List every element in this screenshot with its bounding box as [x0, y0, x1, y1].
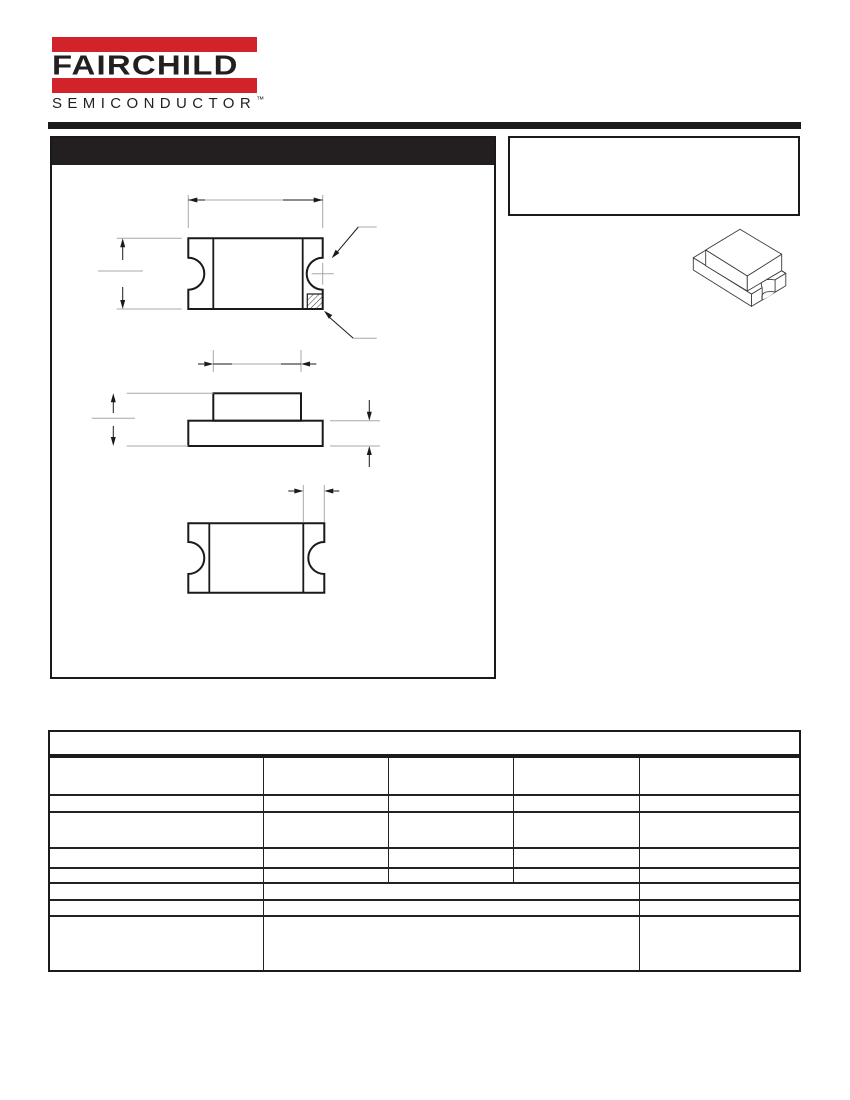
table-cell [639, 868, 799, 883]
table-cell [50, 883, 263, 900]
table-row [50, 883, 799, 900]
arrowhead-up-icon [120, 238, 125, 247]
table-cell [263, 795, 388, 812]
table-cell-merged [263, 916, 639, 970]
top-view-terminal-lines [213, 238, 302, 309]
arrowhead-up-icon [367, 446, 372, 455]
header-cell [263, 758, 388, 795]
package-top-view [98, 195, 377, 372]
arrowhead-left-icon [301, 362, 310, 367]
header-cell [388, 758, 513, 795]
package-isometric-view [690, 228, 802, 313]
table-cell [263, 848, 388, 868]
table-cell [513, 812, 639, 848]
datasheet-page: FAIRCHILD SEMICONDUCTOR™ [0, 0, 850, 1100]
table-cell [639, 883, 799, 900]
spec-table-title [50, 732, 799, 758]
table-cell [639, 848, 799, 868]
header-cell [513, 758, 639, 795]
table-cell [50, 848, 263, 868]
dimension-top-width [188, 195, 322, 228]
table-cell [639, 795, 799, 812]
table-cell [263, 812, 388, 848]
bottom-view-terminal-lines [209, 523, 303, 592]
table-cell-merged [263, 900, 639, 916]
panel-title-bar [52, 138, 494, 165]
arrowhead-right-icon [204, 362, 213, 367]
table-row [50, 812, 799, 848]
notch-center-crosshair [312, 263, 334, 285]
leader-arrowhead-icon [324, 311, 332, 319]
table-cell [50, 916, 263, 970]
arrowhead-left-icon [324, 489, 333, 494]
arrowhead-down-icon [367, 412, 372, 421]
logo-brand-text: FAIRCHILD [52, 51, 302, 78]
arrowhead-down-icon [111, 437, 116, 446]
header-divider-rule [48, 122, 801, 129]
leader-notch [332, 227, 377, 258]
logo-subbrand-text: SEMICONDUCTOR™ [52, 95, 264, 112]
dimension-base-thickness [330, 400, 380, 467]
table-cell [50, 812, 263, 848]
header-cell [50, 758, 263, 795]
arrowhead-right-icon [314, 198, 323, 203]
table-cell [388, 848, 513, 868]
table-cell [513, 868, 639, 883]
spec-table [48, 730, 801, 972]
dimension-lens-width [198, 350, 316, 372]
package-drawing [52, 165, 494, 677]
table-cell [263, 868, 388, 883]
package-side-view [92, 393, 380, 467]
table-cell [50, 868, 263, 883]
table-header-row [50, 758, 799, 795]
arrowhead-down-icon [120, 300, 125, 309]
table-cell [388, 812, 513, 848]
note-box [508, 136, 800, 216]
table-cell [639, 900, 799, 916]
arrowhead-right-icon [294, 489, 303, 494]
table-cell [513, 795, 639, 812]
table-row [50, 848, 799, 868]
leader-cathode [324, 311, 377, 339]
arrowhead-left-icon [188, 198, 197, 203]
package-bottom-view [188, 485, 339, 593]
table-cell [50, 795, 263, 812]
table-cell [639, 812, 799, 848]
side-view-base [188, 421, 322, 446]
table-cell [639, 916, 799, 970]
spec-grid [50, 758, 799, 970]
dimension-left-height [98, 238, 182, 309]
package-dimensions-panel [50, 136, 496, 679]
table-row [50, 916, 799, 970]
cathode-mark [307, 294, 322, 309]
arrowhead-up-icon [111, 393, 116, 402]
table-row [50, 868, 799, 883]
logo-subbrand-word: SEMICONDUCTOR [52, 95, 256, 112]
dimension-total-height [92, 393, 214, 446]
table-cell [388, 868, 513, 883]
logo-trademark: ™ [256, 95, 264, 104]
table-row [50, 900, 799, 916]
side-view-lens [213, 393, 301, 420]
table-cell-merged [263, 883, 639, 900]
fairchild-logo: FAIRCHILD SEMICONDUCTOR™ [52, 37, 264, 112]
dimension-terminal-width [288, 485, 339, 522]
table-cell [50, 900, 263, 916]
table-row [50, 795, 799, 812]
table-cell [388, 795, 513, 812]
table-cell [513, 848, 639, 868]
header-cell [639, 758, 799, 795]
iso-notch [761, 279, 775, 299]
